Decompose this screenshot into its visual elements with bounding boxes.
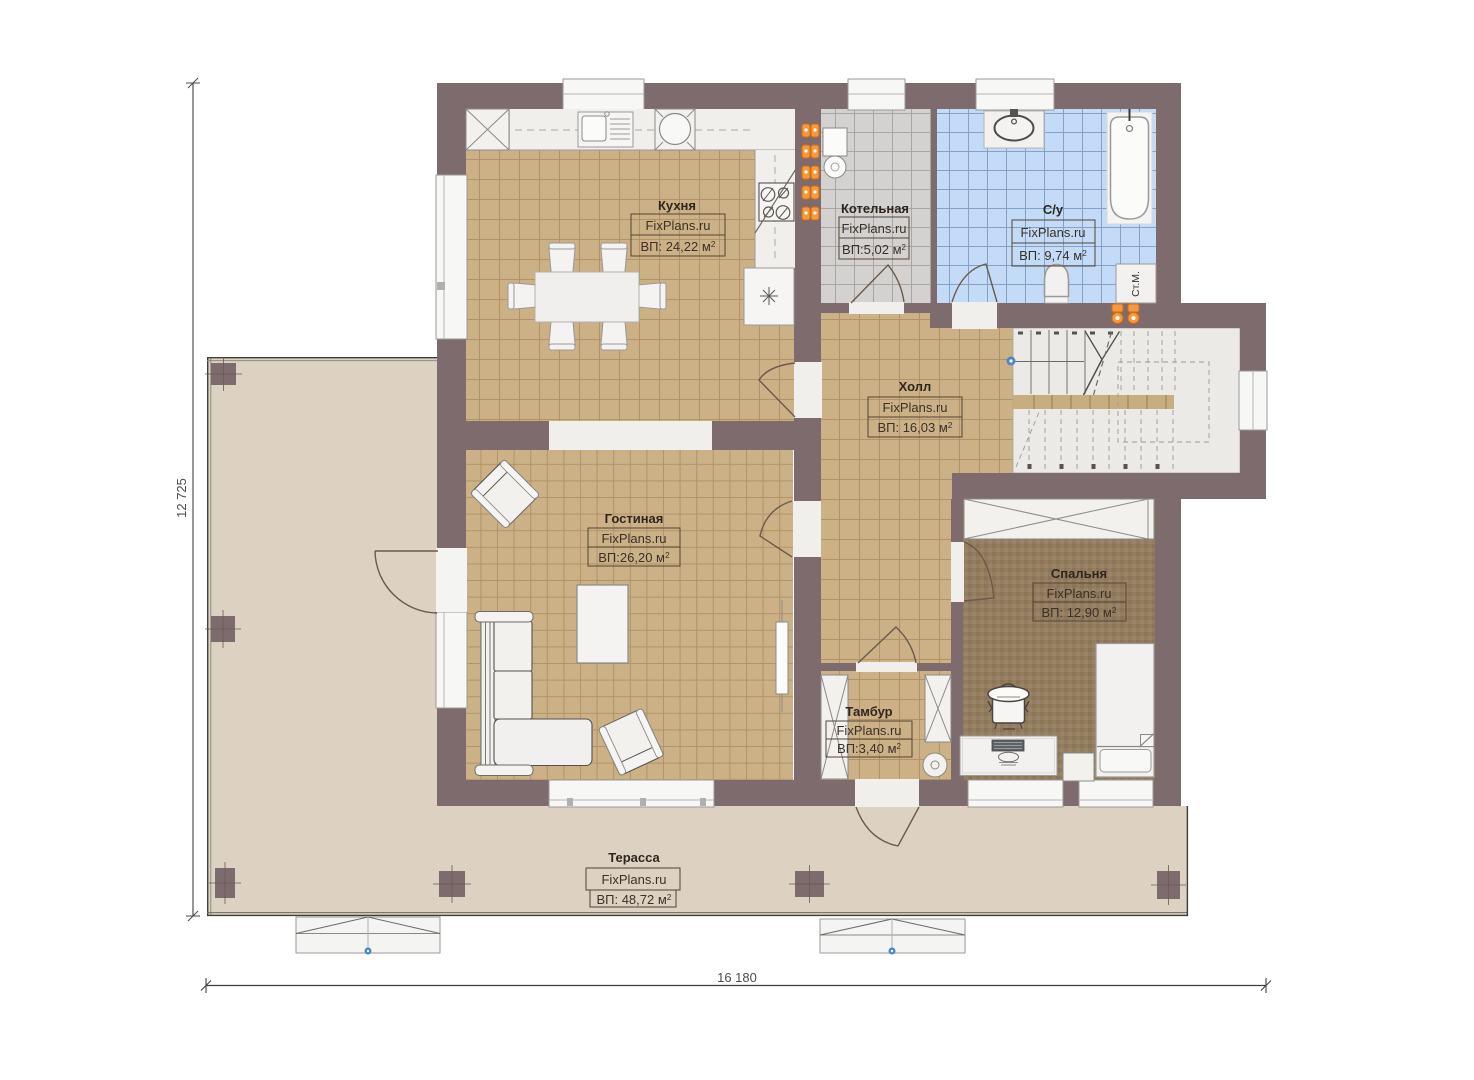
svg-text:FixPlans.ru: FixPlans.ru [841,221,906,236]
svg-text:ВП: 48,72 м2: ВП: 48,72 м2 [596,892,671,907]
svg-text:FixPlans.ru: FixPlans.ru [1046,586,1111,601]
svg-text:ВП:3,40 м2: ВП:3,40 м2 [837,741,901,756]
svg-text:ВП: 16,03 м2: ВП: 16,03 м2 [877,420,952,435]
svg-text:ВП: 9,74 м2: ВП: 9,74 м2 [1019,248,1087,263]
svg-text:16 180: 16 180 [717,970,757,985]
svg-text:ВП:5,02 м2: ВП:5,02 м2 [842,242,906,257]
svg-text:Спальня: Спальня [1051,566,1107,581]
svg-text:12 725: 12 725 [174,478,189,518]
svg-text:ВП: 12,90 м2: ВП: 12,90 м2 [1041,605,1116,620]
svg-text:ВП:26,20 м2: ВП:26,20 м2 [598,550,670,565]
svg-text:FixPlans.ru: FixPlans.ru [601,531,666,546]
svg-text:Гостиная: Гостиная [605,511,664,526]
svg-text:Кухня: Кухня [658,198,696,213]
svg-text:ВП: 24,22 м2: ВП: 24,22 м2 [640,239,715,254]
svg-text:Котельная: Котельная [841,201,909,216]
svg-text:FixPlans.ru: FixPlans.ru [882,400,947,415]
svg-text:FixPlans.ru: FixPlans.ru [836,723,901,738]
svg-text:Холл: Холл [899,379,932,394]
svg-text:Тамбур: Тамбур [845,704,892,719]
svg-text:Терасса: Терасса [608,850,660,865]
svg-text:С/у: С/у [1043,202,1064,217]
svg-text:FixPlans.ru: FixPlans.ru [645,218,710,233]
svg-text:FixPlans.ru: FixPlans.ru [1020,225,1085,240]
svg-text:FixPlans.ru: FixPlans.ru [601,872,666,887]
svg-text:Ст.М.: Ст.М. [1130,271,1142,297]
